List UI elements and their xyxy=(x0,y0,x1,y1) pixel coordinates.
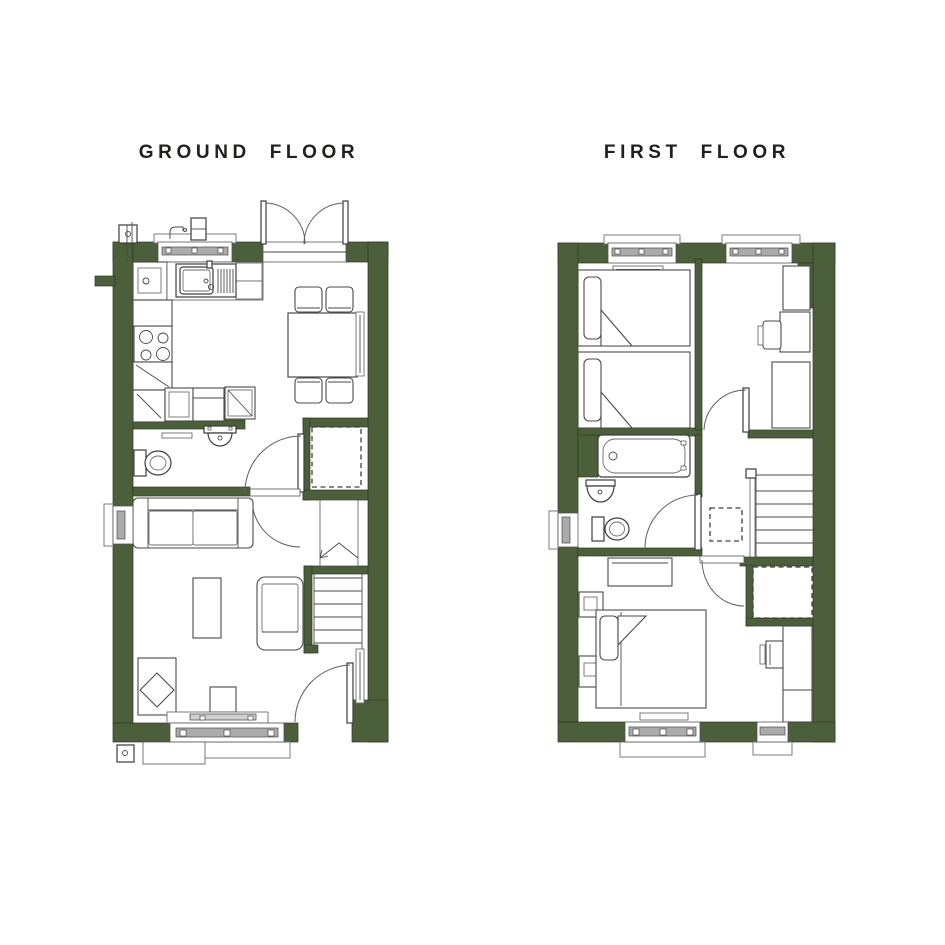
double-bed xyxy=(596,610,706,708)
kitchen-hob xyxy=(134,326,172,362)
storage-cupboard xyxy=(312,427,361,487)
loft-hatch xyxy=(710,508,742,541)
meter-box xyxy=(117,745,134,762)
porch-step xyxy=(143,742,205,764)
rug-shelf xyxy=(640,713,688,720)
stair-bulkhead-cupboard xyxy=(753,567,812,618)
staircase xyxy=(746,469,813,557)
twin-bed-2 xyxy=(578,352,690,428)
dining-chairs xyxy=(295,287,353,403)
tv-unit xyxy=(167,687,268,723)
dining-radiator xyxy=(356,312,364,376)
main-wardrobe xyxy=(783,626,812,722)
bedroom2-door xyxy=(704,388,749,432)
main-bedroom-door xyxy=(700,556,744,606)
twin-bed-1 xyxy=(578,270,690,346)
bathroom-door xyxy=(645,494,701,550)
first-floor-plan xyxy=(549,235,835,757)
chaise xyxy=(138,658,176,715)
armchair xyxy=(257,577,303,650)
side-window xyxy=(104,504,133,546)
kitchen-sink xyxy=(176,261,236,297)
dresser xyxy=(608,558,672,586)
dining-table xyxy=(288,313,357,377)
hall-door xyxy=(250,489,300,547)
floorplan-drawing xyxy=(0,0,945,945)
boiler-unit xyxy=(133,262,167,300)
hall-radiator xyxy=(356,649,364,703)
bath xyxy=(598,435,690,477)
wc-toilet xyxy=(134,450,171,476)
side-window xyxy=(549,511,578,549)
french-doors xyxy=(261,201,348,262)
bedroom2-furniture xyxy=(758,266,810,428)
wc-basin xyxy=(204,426,236,446)
staircase xyxy=(314,500,362,650)
bathroom-toilet xyxy=(592,517,629,541)
floorplan-canvas: GROUND FLOOR FIRST FLOOR xyxy=(0,0,945,945)
ground-floor-plan xyxy=(95,201,388,764)
wc-shelf xyxy=(162,433,192,438)
sofa xyxy=(133,498,253,548)
bathroom-basin xyxy=(586,480,615,502)
front-door xyxy=(295,663,353,723)
wc-door xyxy=(245,434,304,492)
coffee-table xyxy=(193,578,221,638)
